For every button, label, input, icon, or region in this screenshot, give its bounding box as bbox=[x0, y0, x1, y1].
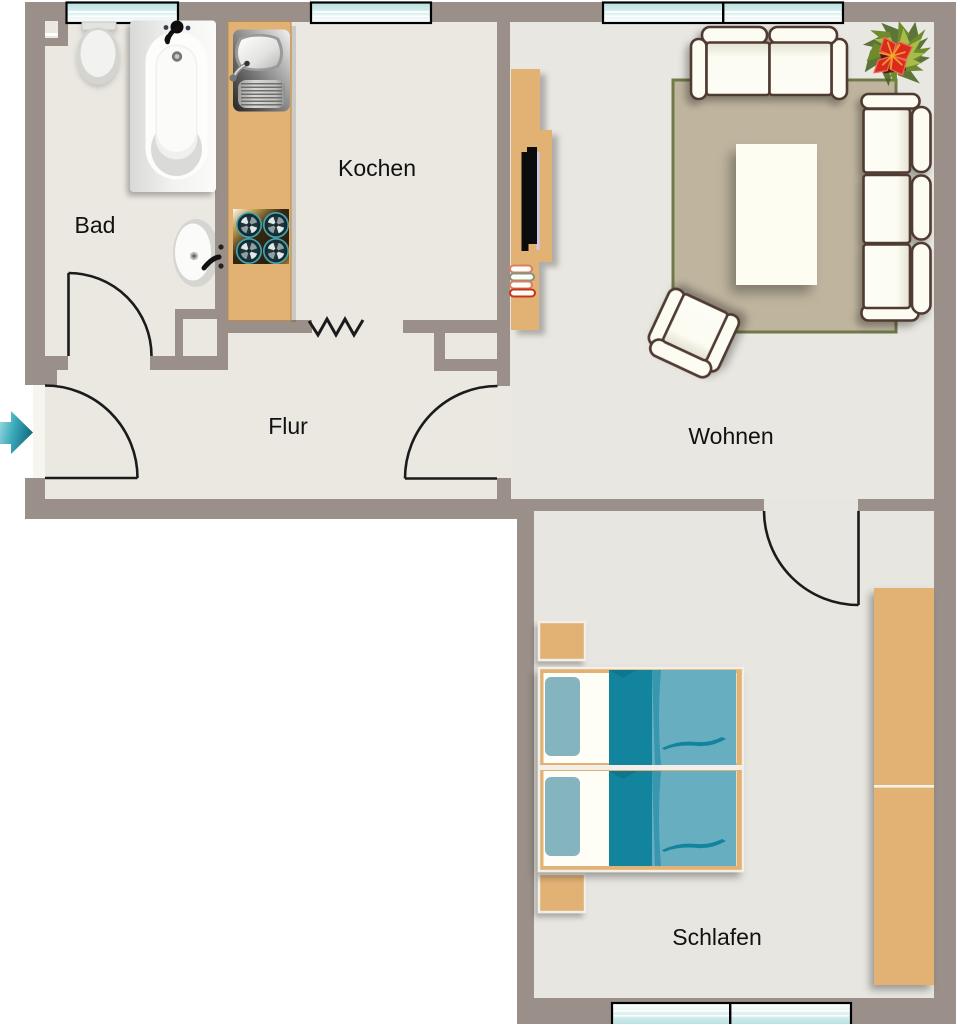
svg-text:Bad: Bad bbox=[75, 212, 116, 238]
svg-text:Wohnen: Wohnen bbox=[688, 423, 773, 449]
svg-text:Kochen: Kochen bbox=[338, 155, 416, 181]
svg-text:Schlafen: Schlafen bbox=[672, 924, 762, 950]
svg-text:Flur: Flur bbox=[268, 413, 308, 439]
